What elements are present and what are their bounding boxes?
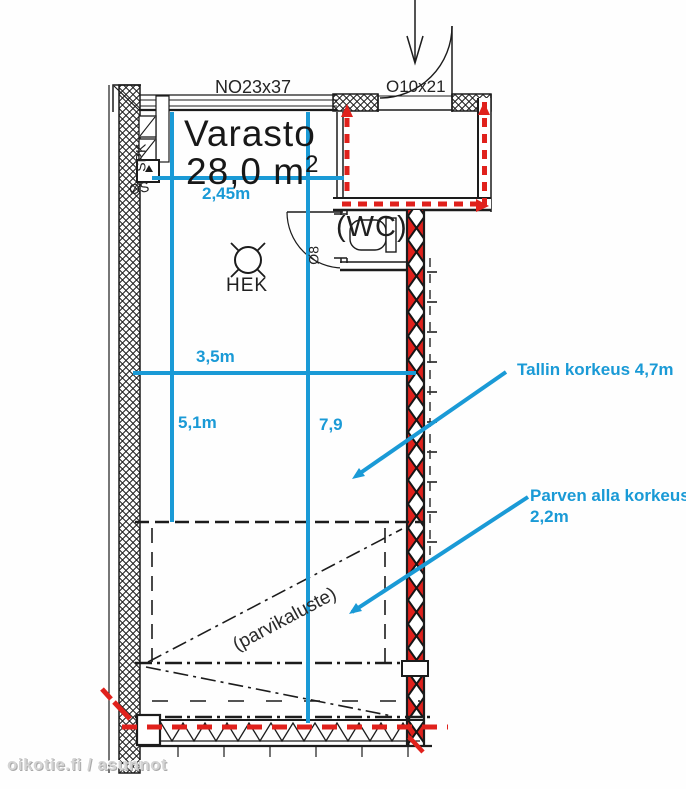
floor-plan: NO23x37 O10x21 Varasto 28,0 m2 SPK ØS 2,… xyxy=(0,0,686,789)
annotation-under-loft-1: Parven alla korkeus xyxy=(530,487,686,505)
ceiling-fixture-icon xyxy=(231,243,265,277)
loft-diagonal-1 xyxy=(148,529,402,662)
dim-upper-width-label: 2,45m xyxy=(202,185,250,203)
floor-plan-drawing xyxy=(0,0,686,789)
right-pillar xyxy=(402,661,428,676)
entry-top-wall-left xyxy=(333,94,378,111)
annotation-hall-height: Tallin korkeus 4,7m xyxy=(517,361,674,379)
leader-hall-height xyxy=(356,372,506,476)
spk-riser xyxy=(156,96,169,162)
dim-left-height-label: 5,1m xyxy=(178,414,217,432)
wc-door-label: Ø8 xyxy=(306,246,321,265)
wc-label: (WC) xyxy=(336,212,408,242)
dim-mid-width-label: 3,5m xyxy=(196,348,235,366)
site-watermark: oikotie.fi / asunnot xyxy=(7,756,167,774)
bottom-left-post xyxy=(137,715,160,745)
loft-diagonal-2 xyxy=(146,667,392,716)
entry-door-label: O10x21 xyxy=(386,78,446,96)
entry-door-opening xyxy=(378,94,452,112)
sprinkler-riser-label: SPK xyxy=(133,144,148,172)
bottom-wall xyxy=(137,715,432,757)
electrical-label: ØS xyxy=(128,179,150,197)
entry-direction-arrow xyxy=(407,0,423,63)
window-label: NO23x37 xyxy=(215,78,291,97)
room-area-sup: 2 xyxy=(305,151,319,178)
ceiling-fixture-label: HEK xyxy=(226,276,268,296)
leader-under-loft xyxy=(352,497,528,612)
dim-right-height-label: 7,9 xyxy=(319,416,343,434)
room-title: Varasto xyxy=(184,115,316,154)
annotation-under-loft-2: 2,2m xyxy=(530,508,569,526)
entry-partition xyxy=(337,112,343,198)
right-wall-reference-line xyxy=(427,258,437,560)
